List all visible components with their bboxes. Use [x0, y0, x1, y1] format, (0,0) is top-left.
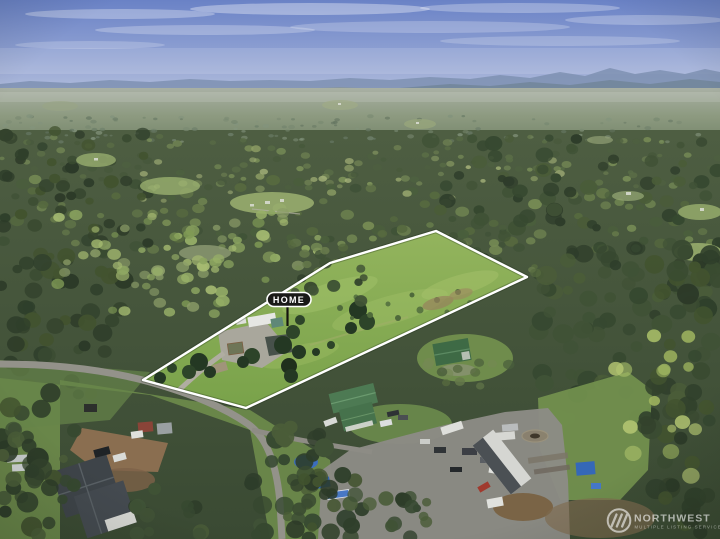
aerial-photo: HOME NORTHWEST MULTIPLE LISTING SERVICE	[0, 0, 720, 539]
home-label-text: HOME	[273, 295, 305, 305]
nwmls-watermark: NORTHWEST MULTIPLE LISTING SERVICE	[608, 509, 720, 532]
vignette	[0, 0, 720, 539]
aerial-photo-canvas: HOME NORTHWEST MULTIPLE LISTING SERVICE	[0, 0, 720, 539]
watermark-brand-text: NORTHWEST	[634, 513, 711, 525]
nwmls-circle-slashes-icon	[608, 509, 631, 532]
watermark-tagline-text: MULTIPLE LISTING SERVICE	[635, 525, 720, 530]
